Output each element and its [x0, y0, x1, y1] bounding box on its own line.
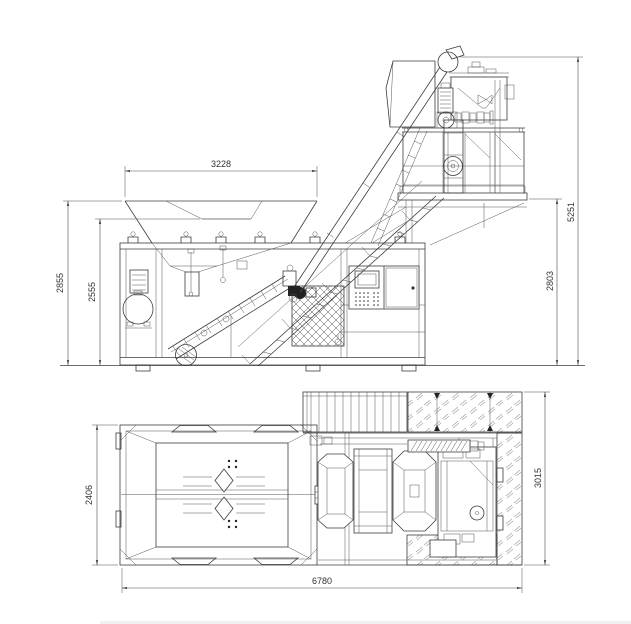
dim-total-height: 5251: [460, 57, 583, 365]
plan-belt-conveyor: [354, 449, 392, 533]
dim-plan-width: 2406: [84, 425, 118, 565]
plan-hopper: [116, 425, 345, 565]
feed-hood: [386, 61, 435, 127]
dim-label-2803: 2803: [545, 271, 555, 291]
mixer-discharge-column: [444, 120, 464, 193]
head-pulley: [283, 271, 296, 286]
technical-drawing-page: 3228 2855 2555 5251 2803 2406: [0, 0, 631, 624]
mixer-vessel: [451, 77, 507, 120]
screw-drive-motor: [437, 83, 457, 128]
dim-label-2406: 2406: [84, 485, 94, 505]
elevation-view: [60, 46, 585, 371]
screw-head: [438, 52, 458, 72]
dim-platform-height: 2803: [529, 199, 562, 365]
bolt-holes: [228, 460, 237, 528]
platform-railing: [402, 128, 525, 193]
screw-support-leg: [371, 128, 427, 246]
aggregate-hopper: [125, 201, 317, 296]
dim-overall-length: 6780: [122, 568, 522, 593]
louver-panel: [130, 270, 148, 293]
butterfly-valve: [478, 95, 492, 104]
plan-weigh-hopper-right: [393, 451, 436, 531]
plan-weigh-hopper-left: [318, 454, 353, 528]
batching-plant-drawing: 3228 2855 2555 5251 2803 2406: [0, 0, 631, 624]
control-panel: [349, 266, 419, 309]
belt-conveyor: [168, 265, 296, 366]
screw-intake: [288, 286, 300, 296]
platform-floor: [398, 193, 527, 200]
plan-view: [116, 392, 522, 565]
dim-label-2855: 2855: [55, 273, 65, 293]
dim-left-height-inner: 2555: [87, 219, 200, 365]
flanged-feed-pipe: [455, 111, 493, 124]
dim-hopper-top-width: 3228: [125, 159, 317, 197]
dim-label-6780: 6780: [312, 576, 332, 586]
mixer-unit: [437, 62, 514, 193]
dim-label-3015: 3015: [533, 468, 543, 488]
plan-mixer-assembly: [430, 447, 496, 557]
discharge-feeder: [185, 246, 247, 296]
screw-conveyor: [288, 46, 464, 302]
dim-plan-depth: 3015: [524, 392, 550, 565]
lifting-lugs: [128, 232, 405, 243]
air-tank: [123, 291, 153, 328]
plan-stairs-strip: [303, 392, 407, 432]
mixer-platform: [345, 128, 527, 245]
dim-label-2555: 2555: [87, 282, 97, 302]
dim-label-3228: 3228: [211, 159, 231, 169]
plan-body: [303, 392, 522, 565]
dim-label-5251: 5251: [566, 202, 576, 222]
